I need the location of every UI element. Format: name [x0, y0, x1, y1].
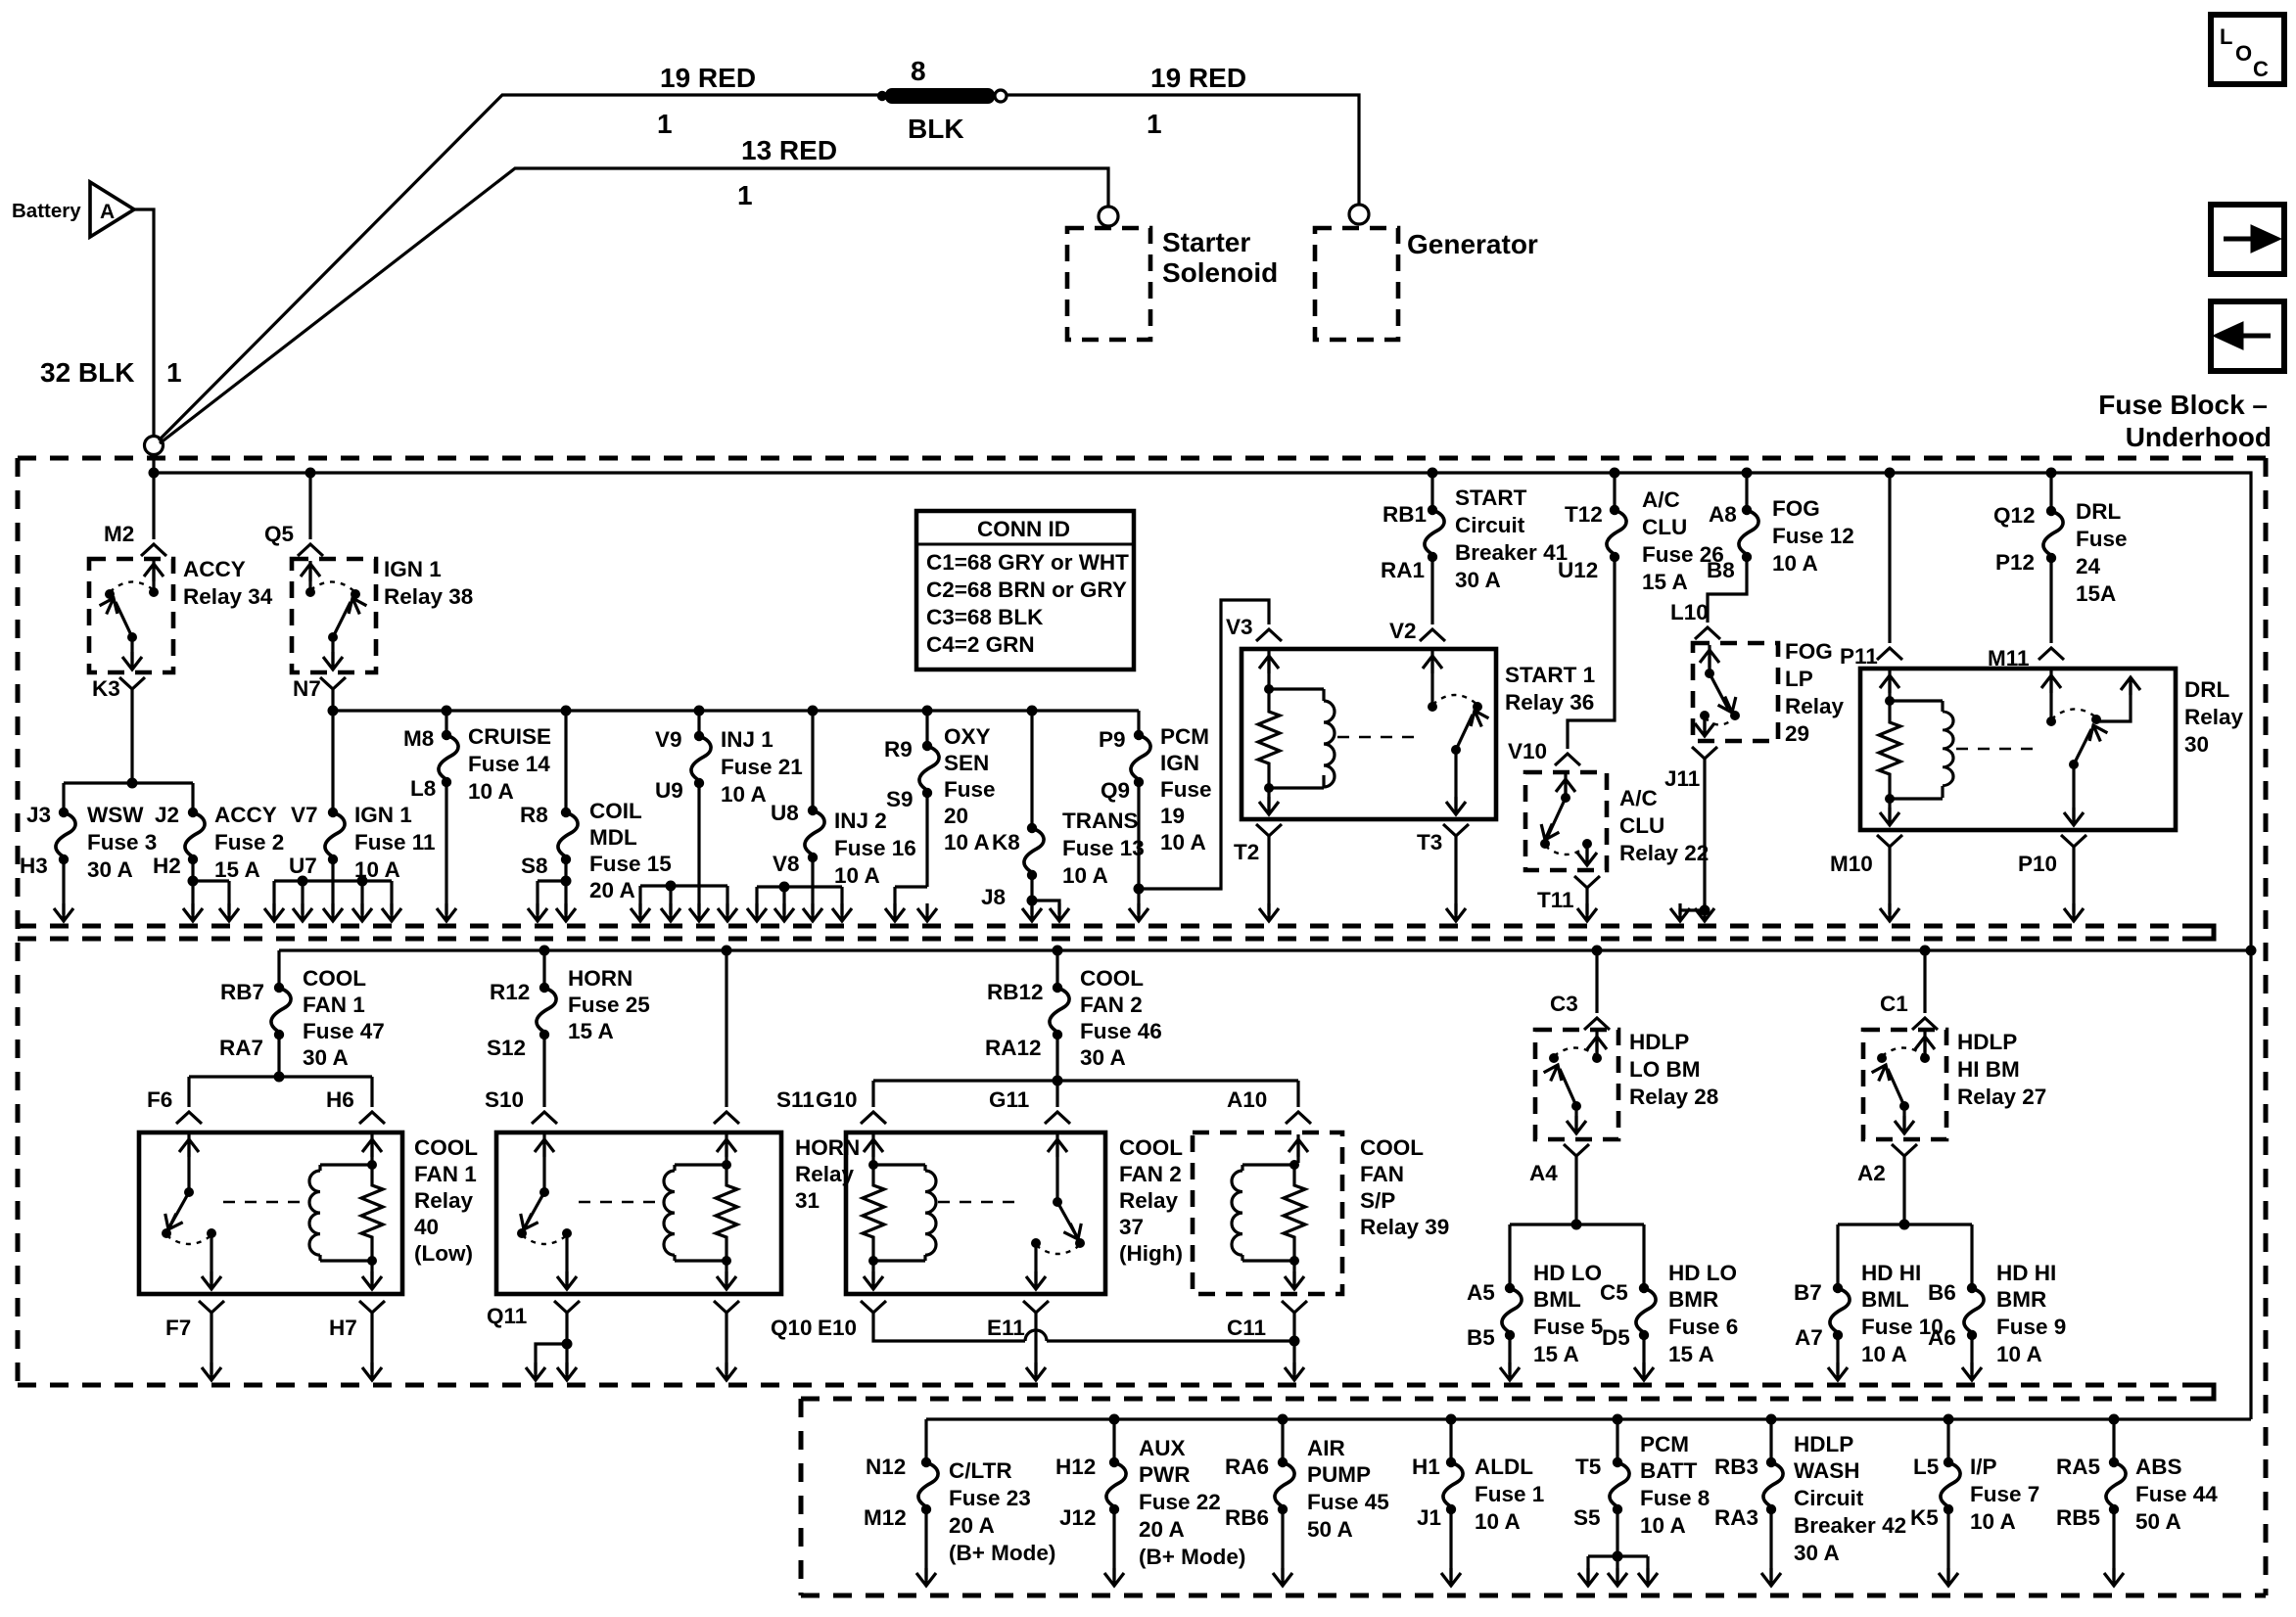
- svg-text:B6: B6: [1928, 1280, 1956, 1305]
- svg-text:FOG: FOG: [1785, 639, 1833, 664]
- svg-text:L5: L5: [1913, 1455, 1939, 1479]
- svg-text:IGN 1: IGN 1: [354, 803, 412, 827]
- svg-text:L: L: [2220, 24, 2232, 49]
- svg-text:C11: C11: [1227, 1316, 1266, 1340]
- svg-text:A/C: A/C: [1619, 786, 1658, 810]
- svg-text:1: 1: [737, 180, 753, 210]
- svg-text:COOL: COOL: [1360, 1135, 1424, 1160]
- svg-text:Q11: Q11: [487, 1304, 527, 1328]
- svg-text:RB7: RB7: [220, 980, 264, 1004]
- svg-text:P10: P10: [2018, 852, 2057, 876]
- svg-text:J1: J1: [1417, 1505, 1441, 1530]
- svg-text:RA12: RA12: [985, 1036, 1042, 1060]
- svg-text:FAN 2: FAN 2: [1080, 993, 1143, 1017]
- svg-text:20: 20: [944, 804, 968, 828]
- svg-text:A4: A4: [1529, 1161, 1558, 1185]
- svg-text:HORN: HORN: [568, 966, 633, 991]
- svg-text:PCM: PCM: [1640, 1432, 1689, 1456]
- svg-text:50 A: 50 A: [2135, 1509, 2181, 1534]
- svg-text:10 A: 10 A: [1970, 1509, 2016, 1534]
- svg-text:Relay 27: Relay 27: [1957, 1085, 2046, 1109]
- svg-text:BMR: BMR: [1996, 1287, 2046, 1312]
- svg-text:ABS: ABS: [2135, 1455, 2182, 1479]
- svg-text:10 A: 10 A: [1475, 1509, 1521, 1534]
- svg-text:CLU: CLU: [1619, 813, 1664, 838]
- svg-text:G11: G11: [989, 1087, 1029, 1112]
- svg-text:C4=2 GRN: C4=2 GRN: [926, 632, 1035, 657]
- svg-text:Generator: Generator: [1407, 229, 1538, 259]
- svg-text:K8: K8: [992, 830, 1020, 855]
- svg-text:CONN ID: CONN ID: [977, 517, 1070, 541]
- svg-text:N12: N12: [866, 1455, 906, 1479]
- svg-text:H1: H1: [1412, 1455, 1440, 1479]
- svg-text:31: 31: [795, 1188, 820, 1213]
- svg-text:10 A: 10 A: [1861, 1342, 1907, 1366]
- svg-text:N7: N7: [293, 676, 321, 701]
- svg-text:S10: S10: [485, 1087, 524, 1112]
- svg-text:T3: T3: [1417, 830, 1442, 855]
- svg-text:H6: H6: [326, 1087, 354, 1112]
- svg-text:S5: S5: [1573, 1505, 1601, 1530]
- svg-text:Fuse 5: Fuse 5: [1533, 1315, 1603, 1339]
- svg-text:DRL: DRL: [2184, 677, 2229, 702]
- svg-text:M12: M12: [864, 1505, 907, 1530]
- svg-text:M10: M10: [1830, 852, 1873, 876]
- svg-text:IGN 1: IGN 1: [384, 557, 442, 581]
- svg-text:J11: J11: [1664, 766, 1700, 791]
- svg-text:U12: U12: [1558, 558, 1598, 582]
- svg-text:ACCY: ACCY: [183, 557, 246, 581]
- svg-text:Relay: Relay: [2184, 705, 2244, 729]
- svg-text:Fuse 8: Fuse 8: [1640, 1486, 1710, 1510]
- svg-text:Fuse 13: Fuse 13: [1062, 836, 1145, 860]
- svg-text:E11: E11: [987, 1316, 1025, 1340]
- svg-text:Battery: Battery: [12, 200, 81, 222]
- svg-text:ACCY: ACCY: [214, 803, 277, 827]
- svg-text:10 A: 10 A: [1996, 1342, 2042, 1366]
- svg-text:DRL: DRL: [2076, 499, 2121, 524]
- svg-text:30 A: 30 A: [303, 1045, 349, 1070]
- svg-text:HD HI: HD HI: [1996, 1261, 2056, 1285]
- svg-text:A8: A8: [1709, 502, 1737, 527]
- svg-text:R9: R9: [884, 737, 913, 762]
- svg-text:S8: S8: [521, 854, 548, 878]
- svg-text:A6: A6: [1928, 1325, 1956, 1350]
- svg-text:30 A: 30 A: [1455, 568, 1501, 592]
- svg-text:Breaker 41: Breaker 41: [1455, 540, 1568, 565]
- svg-text:B8: B8: [1707, 558, 1735, 582]
- svg-text:20 A: 20 A: [589, 878, 635, 902]
- svg-text:J8: J8: [981, 885, 1006, 909]
- svg-text:WASH: WASH: [1794, 1458, 1860, 1483]
- svg-text:V2: V2: [1389, 619, 1417, 643]
- svg-text:30 A: 30 A: [1794, 1541, 1840, 1565]
- svg-text:BMR: BMR: [1668, 1287, 1718, 1312]
- svg-text:BML: BML: [1533, 1287, 1581, 1312]
- svg-text:A: A: [100, 201, 115, 223]
- svg-text:Circuit: Circuit: [1455, 513, 1525, 537]
- svg-text:F7: F7: [165, 1316, 191, 1340]
- svg-text:(Low): (Low): [414, 1241, 473, 1266]
- svg-text:10 A: 10 A: [834, 863, 880, 888]
- svg-text:COOL: COOL: [414, 1135, 478, 1160]
- svg-text:S9: S9: [886, 787, 914, 811]
- svg-text:MDL: MDL: [589, 825, 637, 850]
- svg-text:U9: U9: [655, 778, 683, 803]
- svg-text:R12: R12: [490, 980, 530, 1004]
- svg-text:IGN: IGN: [1160, 751, 1199, 775]
- svg-text:HDLP: HDLP: [1794, 1432, 1853, 1456]
- svg-text:START: START: [1455, 485, 1527, 510]
- svg-text:PUMP: PUMP: [1307, 1462, 1371, 1487]
- svg-text:V8: V8: [773, 852, 800, 876]
- svg-text:J3: J3: [26, 803, 51, 827]
- svg-text:D5: D5: [1602, 1325, 1630, 1350]
- svg-text:10 A: 10 A: [721, 782, 767, 807]
- svg-text:WSW: WSW: [87, 803, 144, 827]
- svg-text:P11: P11: [1840, 644, 1878, 669]
- svg-text:37: 37: [1119, 1215, 1144, 1239]
- svg-text:FAN 1: FAN 1: [414, 1162, 477, 1186]
- svg-text:Fuse 14: Fuse 14: [468, 752, 550, 776]
- svg-text:HDLP: HDLP: [1957, 1030, 2017, 1054]
- svg-text:LP: LP: [1785, 667, 1813, 691]
- svg-text:Q12: Q12: [1993, 503, 2036, 528]
- svg-text:10 A: 10 A: [1062, 863, 1108, 888]
- svg-text:M8: M8: [403, 726, 434, 751]
- svg-text:PCM: PCM: [1160, 724, 1209, 749]
- svg-text:FAN 1: FAN 1: [303, 993, 365, 1017]
- svg-text:Fuse Block –: Fuse Block –: [2098, 390, 2268, 420]
- svg-text:J12: J12: [1059, 1505, 1097, 1530]
- svg-text:COOL: COOL: [303, 966, 366, 991]
- svg-text:20 A: 20 A: [1139, 1517, 1185, 1542]
- svg-text:SEN: SEN: [944, 751, 989, 775]
- svg-text:K3: K3: [92, 676, 120, 701]
- svg-text:A/C: A/C: [1642, 487, 1680, 512]
- svg-text:B7: B7: [1794, 1280, 1822, 1305]
- svg-text:Q5: Q5: [264, 522, 294, 546]
- svg-text:AUX: AUX: [1139, 1436, 1186, 1460]
- svg-text:1: 1: [1147, 109, 1162, 139]
- svg-text:C1=68 GRY or WHT: C1=68 GRY or WHT: [926, 550, 1129, 575]
- svg-text:COOL: COOL: [1119, 1135, 1183, 1160]
- svg-text:L8: L8: [410, 776, 436, 801]
- svg-text:G10: G10: [816, 1087, 858, 1112]
- svg-text:I/P: I/P: [1970, 1455, 1997, 1479]
- svg-text:S12: S12: [487, 1036, 526, 1060]
- svg-text:FAN 2: FAN 2: [1119, 1162, 1182, 1186]
- svg-text:F6: F6: [147, 1087, 172, 1112]
- svg-text:BML: BML: [1861, 1287, 1909, 1312]
- svg-text:Underhood: Underhood: [2126, 422, 2272, 452]
- svg-text:Fuse 15: Fuse 15: [589, 852, 672, 876]
- svg-text:Relay 39: Relay 39: [1360, 1215, 1449, 1239]
- svg-text:RA6: RA6: [1225, 1455, 1269, 1479]
- svg-text:Relay: Relay: [414, 1188, 474, 1213]
- svg-text:V7: V7: [291, 803, 318, 827]
- svg-text:RA1: RA1: [1381, 558, 1425, 582]
- svg-text:U7: U7: [289, 854, 317, 878]
- svg-text:RB12: RB12: [987, 980, 1044, 1004]
- svg-text:ALDL: ALDL: [1475, 1455, 1533, 1479]
- svg-text:Fuse 46: Fuse 46: [1080, 1019, 1162, 1043]
- svg-text:HI BM: HI BM: [1957, 1057, 2020, 1082]
- svg-text:Fuse 2: Fuse 2: [214, 830, 284, 855]
- svg-text:V9: V9: [655, 727, 682, 752]
- svg-text:Fuse 44: Fuse 44: [2135, 1482, 2218, 1506]
- svg-text:Fuse 12: Fuse 12: [1772, 524, 1854, 548]
- svg-text:RB6: RB6: [1225, 1505, 1269, 1530]
- svg-text:Q9: Q9: [1101, 778, 1130, 803]
- svg-text:30 A: 30 A: [1080, 1045, 1126, 1070]
- svg-text:C: C: [2253, 57, 2269, 81]
- svg-text:Relay 22: Relay 22: [1619, 841, 1709, 865]
- svg-text:Fuse 11: Fuse 11: [354, 830, 436, 855]
- svg-text:U8: U8: [771, 801, 799, 825]
- svg-text:C3=68 BLK: C3=68 BLK: [926, 605, 1044, 629]
- svg-text:Fuse: Fuse: [2076, 527, 2128, 551]
- svg-text:(B+ Mode): (B+ Mode): [949, 1541, 1055, 1565]
- svg-text:K5: K5: [1910, 1505, 1939, 1530]
- svg-text:CRUISE: CRUISE: [468, 724, 551, 749]
- svg-text:10 A: 10 A: [1772, 551, 1818, 576]
- svg-text:1: 1: [166, 357, 182, 388]
- svg-text:RA5: RA5: [2056, 1455, 2100, 1479]
- svg-text:Fuse 16: Fuse 16: [834, 836, 916, 860]
- svg-text:H2: H2: [153, 854, 181, 878]
- svg-text:HDLP: HDLP: [1629, 1030, 1689, 1054]
- svg-text:Starter: Starter: [1162, 227, 1250, 257]
- svg-text:Fuse 21: Fuse 21: [721, 755, 803, 779]
- svg-text:A10: A10: [1227, 1087, 1267, 1112]
- svg-text:BLK: BLK: [908, 114, 964, 144]
- svg-text:LO BM: LO BM: [1629, 1057, 1701, 1082]
- svg-text:P9: P9: [1099, 727, 1126, 752]
- svg-text:Circuit: Circuit: [1794, 1486, 1864, 1510]
- svg-text:C5: C5: [1600, 1280, 1628, 1305]
- svg-text:V10: V10: [1508, 739, 1547, 763]
- svg-text:Fuse 7: Fuse 7: [1970, 1482, 2039, 1506]
- svg-text:A2: A2: [1857, 1161, 1886, 1185]
- svg-text:Fuse 23: Fuse 23: [949, 1486, 1031, 1510]
- svg-text:T11: T11: [1537, 888, 1574, 912]
- svg-text:T5: T5: [1575, 1455, 1601, 1479]
- svg-text:O: O: [2235, 41, 2252, 66]
- svg-text:S11: S11: [776, 1087, 815, 1112]
- svg-text:CLU: CLU: [1642, 515, 1687, 539]
- svg-text:30: 30: [2184, 732, 2209, 757]
- svg-text:Relay 38: Relay 38: [384, 584, 473, 609]
- svg-text:15 A: 15 A: [1642, 570, 1688, 594]
- svg-text:1: 1: [657, 109, 673, 139]
- svg-text:C/LTR: C/LTR: [949, 1458, 1012, 1483]
- svg-text:C2=68 BRN or GRY: C2=68 BRN or GRY: [926, 577, 1127, 602]
- svg-text:15 A: 15 A: [568, 1019, 614, 1043]
- svg-text:H3: H3: [20, 854, 48, 878]
- svg-text:50 A: 50 A: [1307, 1517, 1353, 1542]
- svg-text:10 A: 10 A: [1160, 830, 1206, 855]
- svg-text:C3: C3: [1550, 992, 1578, 1016]
- svg-text:Relay: Relay: [1119, 1188, 1179, 1213]
- svg-text:B5: B5: [1467, 1325, 1495, 1350]
- svg-text:H7: H7: [329, 1316, 357, 1340]
- svg-text:S/P: S/P: [1360, 1188, 1395, 1213]
- svg-text:A5: A5: [1467, 1280, 1495, 1305]
- svg-text:(B+ Mode): (B+ Mode): [1139, 1545, 1245, 1569]
- svg-text:13 RED: 13 RED: [741, 135, 837, 165]
- svg-text:Relay 34: Relay 34: [183, 584, 273, 609]
- svg-text:8: 8: [911, 56, 926, 86]
- svg-text:COIL: COIL: [589, 799, 642, 823]
- svg-text:24: 24: [2076, 554, 2101, 578]
- svg-text:INJ 2: INJ 2: [834, 808, 887, 833]
- svg-text:J2: J2: [155, 803, 179, 827]
- svg-text:10 A: 10 A: [468, 779, 514, 804]
- svg-text:V3: V3: [1226, 615, 1253, 639]
- svg-text:COOL: COOL: [1080, 966, 1144, 991]
- svg-text:HORN: HORN: [795, 1135, 860, 1160]
- svg-text:C1: C1: [1880, 992, 1908, 1016]
- svg-text:29: 29: [1785, 721, 1809, 746]
- svg-text:PWR: PWR: [1139, 1462, 1191, 1487]
- svg-text:30 A: 30 A: [87, 857, 133, 882]
- svg-text:RA3: RA3: [1714, 1505, 1758, 1530]
- svg-text:15 A: 15 A: [214, 857, 260, 882]
- svg-text:RA7: RA7: [219, 1036, 263, 1060]
- svg-text:19 RED: 19 RED: [660, 63, 756, 93]
- svg-text:A7: A7: [1795, 1325, 1823, 1350]
- svg-text:HD LO: HD LO: [1668, 1261, 1737, 1285]
- svg-text:Fuse 1: Fuse 1: [1475, 1482, 1544, 1506]
- svg-text:Fuse 45: Fuse 45: [1307, 1490, 1389, 1514]
- svg-text:Fuse 22: Fuse 22: [1139, 1490, 1221, 1514]
- svg-text:Relay 28: Relay 28: [1629, 1085, 1718, 1109]
- svg-text:10 A: 10 A: [1640, 1513, 1686, 1538]
- svg-text:R8: R8: [520, 803, 548, 827]
- svg-text:T2: T2: [1234, 840, 1259, 864]
- svg-text:OXY: OXY: [944, 724, 991, 749]
- svg-text:RB5: RB5: [2056, 1505, 2100, 1530]
- svg-text:(High): (High): [1119, 1241, 1183, 1266]
- svg-text:E10: E10: [818, 1316, 857, 1340]
- svg-text:Q10: Q10: [771, 1316, 813, 1340]
- svg-text:Fuse 25: Fuse 25: [568, 993, 650, 1017]
- svg-text:FAN: FAN: [1360, 1162, 1404, 1186]
- svg-text:Breaker 42: Breaker 42: [1794, 1513, 1906, 1538]
- svg-text:19 RED: 19 RED: [1150, 63, 1246, 93]
- svg-text:Solenoid: Solenoid: [1162, 257, 1278, 288]
- svg-text:15 A: 15 A: [1533, 1342, 1579, 1366]
- svg-text:Fuse 3: Fuse 3: [87, 830, 157, 855]
- svg-text:Relay 36: Relay 36: [1505, 690, 1594, 715]
- svg-text:32 BLK: 32 BLK: [40, 357, 134, 388]
- svg-text:START 1: START 1: [1505, 663, 1595, 687]
- svg-text:40: 40: [414, 1215, 439, 1239]
- svg-text:Fuse 9: Fuse 9: [1996, 1315, 2066, 1339]
- svg-text:15A: 15A: [2076, 581, 2116, 606]
- svg-text:RB1: RB1: [1382, 502, 1427, 527]
- svg-text:15 A: 15 A: [1668, 1342, 1714, 1366]
- svg-text:Relay: Relay: [1785, 694, 1845, 718]
- svg-text:10 A: 10 A: [944, 830, 990, 855]
- svg-text:H12: H12: [1055, 1455, 1096, 1479]
- svg-text:BATT: BATT: [1640, 1458, 1698, 1483]
- svg-text:INJ 1: INJ 1: [721, 727, 773, 752]
- svg-text:FOG: FOG: [1772, 496, 1820, 521]
- svg-text:Fuse 6: Fuse 6: [1668, 1315, 1738, 1339]
- svg-text:HD HI: HD HI: [1861, 1261, 1921, 1285]
- svg-text:RB3: RB3: [1714, 1455, 1758, 1479]
- svg-text:L10: L10: [1670, 600, 1709, 624]
- svg-text:P12: P12: [1995, 550, 2035, 575]
- svg-text:20 A: 20 A: [949, 1513, 995, 1538]
- svg-text:19: 19: [1160, 804, 1185, 828]
- svg-text:T12: T12: [1565, 502, 1603, 527]
- svg-text:HD LO: HD LO: [1533, 1261, 1602, 1285]
- svg-text:Fuse 47: Fuse 47: [303, 1019, 385, 1043]
- svg-text:Fuse: Fuse: [1160, 777, 1212, 802]
- svg-text:AIR: AIR: [1307, 1436, 1345, 1460]
- svg-text:M2: M2: [104, 522, 134, 546]
- svg-text:Fuse: Fuse: [944, 777, 996, 802]
- svg-text:TRANS: TRANS: [1062, 808, 1139, 833]
